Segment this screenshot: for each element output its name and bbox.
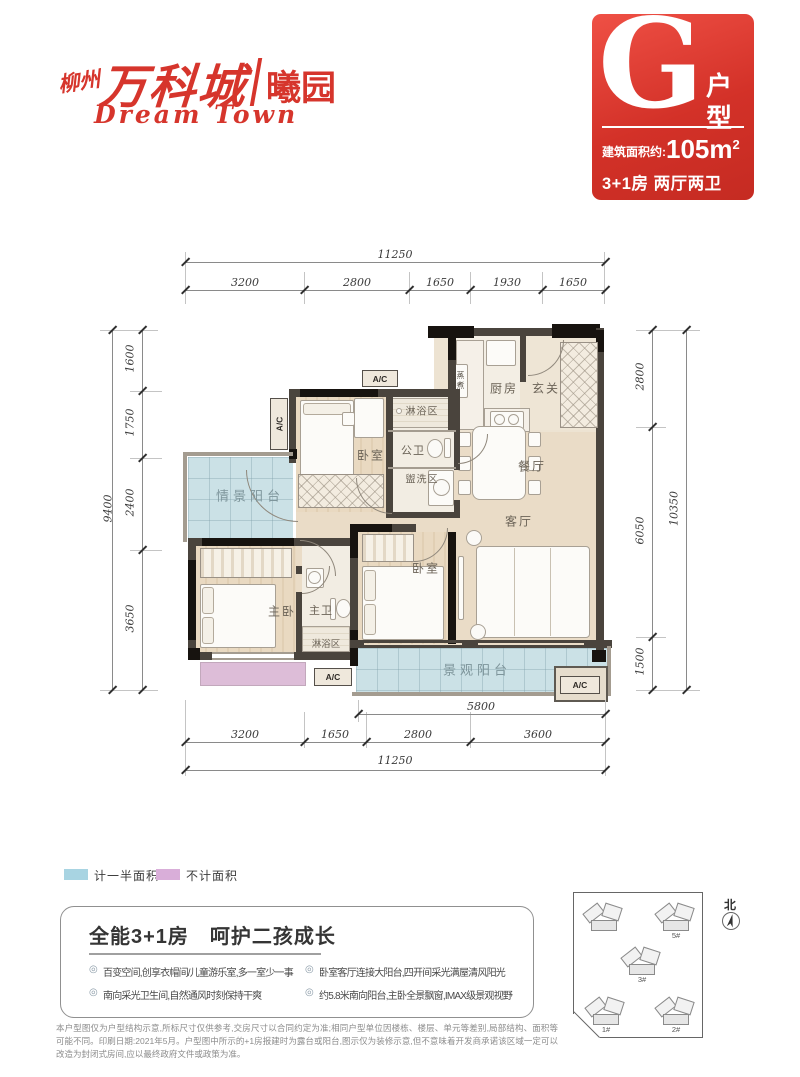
building-base — [663, 1014, 689, 1025]
dim-line — [185, 770, 605, 771]
ext-line — [636, 690, 700, 691]
bullet-icon: ◎ — [89, 987, 98, 998]
dim-right-total: 10350 — [668, 481, 681, 537]
building-base — [629, 964, 655, 975]
dim-bottom-seg: 2800 — [388, 728, 448, 741]
chair — [458, 480, 471, 495]
building-base — [591, 920, 617, 931]
ext-line — [130, 550, 162, 551]
window-line — [350, 645, 612, 648]
dim-top-seg: 1650 — [543, 276, 603, 289]
room-label-bedroom-top: 卧室 — [357, 447, 385, 464]
dim-line — [142, 330, 143, 690]
bullet-icon: ◎ — [305, 964, 314, 975]
wall-segment — [356, 524, 392, 532]
ext-line — [185, 700, 186, 776]
north-label: 北 — [724, 896, 736, 913]
site-building: 1# — [586, 996, 626, 1036]
bullet-icon: ◎ — [89, 964, 98, 975]
dim-line — [185, 262, 605, 263]
wall-segment — [202, 538, 294, 546]
selling-bullet: 卧室客厅连接大阳台,四开间采光满屋清风阳光 — [319, 964, 505, 979]
desk-chair — [342, 412, 355, 426]
sink-bowl — [508, 414, 519, 425]
building-wing — [603, 997, 624, 1016]
room-label-master: 主卧 — [268, 603, 296, 620]
window-line — [212, 658, 294, 660]
dim-bottom-total: 11250 — [365, 754, 425, 767]
ac-label: A/C — [573, 680, 588, 690]
dim-line — [358, 714, 605, 715]
selling-bullet: 南向采光卫生间,自然通风时刻保持干爽 — [103, 987, 261, 1002]
dim-left-seg: 1750 — [124, 395, 137, 451]
building-base — [663, 920, 689, 931]
pillow — [202, 617, 214, 644]
building-label: 2# — [656, 1025, 696, 1034]
selling-bullet: 百变空间,创享衣帽间/儿童游乐室,多一室少一事 — [103, 964, 293, 979]
dim-bottom-seg: 1650 — [305, 728, 365, 741]
dim-line — [686, 330, 687, 690]
ac-label: A/C — [326, 672, 341, 682]
wall-segment — [448, 336, 456, 360]
wall-segment — [296, 592, 302, 660]
dim-top-seg: 2800 — [327, 276, 387, 289]
ac-unit: A/C — [362, 370, 398, 387]
sofa — [476, 546, 590, 638]
pillow — [364, 604, 376, 635]
selling-title: 全能3+1房 呵护二孩成长 — [89, 920, 336, 949]
building-label: 3# — [622, 975, 662, 984]
wardrobe-mid — [362, 534, 414, 562]
wall-segment — [388, 430, 456, 432]
room-label-guest-bath: 公卫 — [401, 442, 425, 458]
pillow — [202, 587, 214, 614]
excluded-bay — [200, 662, 306, 686]
dim-top-seg: 3200 — [215, 276, 275, 289]
toilet-bowl — [427, 439, 443, 458]
room-label-dining: 餐厅 — [518, 458, 546, 475]
wall-segment — [388, 467, 456, 469]
dim-left-seg: 2400 — [124, 475, 137, 531]
site-building — [584, 902, 624, 942]
building-wing — [673, 903, 694, 922]
tv-cabinet — [458, 556, 464, 620]
wall-segment — [520, 336, 526, 382]
ext-line — [130, 458, 162, 459]
floor-plan: 蒸煮 — [0, 0, 800, 800]
window-line — [212, 652, 294, 654]
title-underline — [89, 953, 321, 955]
building-wing — [673, 997, 694, 1016]
ac-unit: A/C — [270, 398, 288, 450]
ext-line — [636, 330, 700, 331]
dim-line — [185, 742, 605, 743]
room-label-shower-master: 淋浴区 — [312, 636, 341, 650]
wall-segment — [188, 648, 200, 660]
wall-segment — [462, 640, 478, 648]
drain — [396, 408, 402, 414]
wall-segment — [350, 630, 358, 666]
dim-left-seg: 3650 — [124, 591, 137, 647]
dim-right-seg: 1500 — [634, 634, 647, 690]
ac-unit: A/C — [560, 676, 600, 694]
wall-segment — [350, 640, 364, 648]
legend-label-excluded: 不计面积 — [186, 867, 238, 884]
dim-bottom-seg: 3600 — [508, 728, 568, 741]
site-building: 2# — [656, 996, 696, 1036]
building-wing — [601, 903, 622, 922]
building-base — [593, 1014, 619, 1025]
ac-unit: A/C — [314, 668, 352, 686]
room-label-shower-top: 淋浴区 — [406, 403, 439, 418]
room-label-living: 客厅 — [505, 513, 533, 530]
dim-left-seg: 1600 — [124, 331, 137, 387]
dim-bottom-inner: 5800 — [451, 700, 511, 713]
dim-right-seg: 6050 — [634, 503, 647, 559]
site-building: 5# — [656, 902, 696, 942]
fridge — [486, 340, 516, 366]
pillow — [364, 570, 376, 601]
disclaimer-text: 本户型图仅为户型结构示意,所标尺寸仅供参考,交房尺寸以合同约定为准;相同户型单位… — [56, 1022, 558, 1060]
room-label-view-balcony: 景观阳台 — [443, 660, 511, 679]
site-building: 3# — [622, 946, 662, 986]
wall-segment — [592, 650, 606, 662]
building-label: 1# — [586, 1025, 626, 1034]
dim-top-total: 11250 — [365, 248, 425, 261]
ac-label: A/C — [274, 417, 284, 432]
toilet-bowl — [336, 599, 351, 618]
dim-top-seg: 1930 — [477, 276, 537, 289]
compass-needle — [722, 912, 741, 931]
building-label: 5# — [656, 931, 696, 940]
side-table — [466, 530, 482, 546]
dim-bottom-seg: 3200 — [215, 728, 275, 741]
bullet-icon: ◎ — [305, 987, 314, 998]
legend-label-half: 计一半面积 — [94, 867, 159, 884]
dim-top-seg: 1650 — [410, 276, 470, 289]
desk — [354, 398, 384, 438]
legend: 计一半面积 不计面积 — [0, 860, 400, 890]
chair — [528, 480, 541, 495]
room-label-bedroom-mid: 卧室 — [412, 560, 440, 577]
compass-icon — [722, 912, 740, 930]
foyer-closet — [560, 342, 598, 428]
wardrobe-master — [200, 548, 292, 578]
room-label-master-bath: 主卫 — [309, 602, 333, 618]
sofa-seam — [514, 548, 515, 636]
sink-bowl — [494, 414, 505, 425]
ext-line — [130, 391, 162, 392]
room-label-foyer: 玄关 — [532, 380, 560, 397]
room-label-scenic-balcony: 情景阳台 — [216, 486, 284, 505]
wall-segment — [294, 652, 358, 660]
wall-segment — [386, 512, 460, 518]
room-label-wash: 盥洗区 — [406, 471, 439, 486]
ac-label: A/C — [373, 374, 388, 384]
window-line — [350, 640, 612, 643]
side-table — [470, 624, 486, 640]
room-label-kitchen: 厨房 — [490, 380, 518, 397]
toilet-tank — [444, 438, 451, 458]
selling-points-panel: 全能3+1房 呵护二孩成长 ◎ 百变空间,创享衣帽间/儿童游乐室,多一室少一事 … — [60, 906, 534, 1018]
dim-tick — [601, 257, 610, 266]
wall-segment — [448, 532, 456, 644]
balcony-rail — [183, 452, 293, 456]
sofa-seam — [550, 548, 551, 636]
building-wing — [639, 947, 660, 966]
dim-left-total: 9400 — [102, 481, 115, 537]
dim-right-seg: 2800 — [634, 349, 647, 405]
chair — [528, 432, 541, 447]
wall-segment — [188, 560, 196, 640]
wall-segment — [300, 389, 378, 397]
selling-bullet: 约5.8米南向阳台,主卧全景飘窗,IMAX级景观视野 — [319, 987, 512, 1002]
legend-swatch-half — [64, 869, 88, 880]
balcony-rail — [183, 452, 187, 542]
legend-swatch-excluded — [156, 869, 180, 880]
wall-segment — [552, 324, 600, 338]
steam-appliance-label: 蒸煮 — [455, 371, 466, 391]
